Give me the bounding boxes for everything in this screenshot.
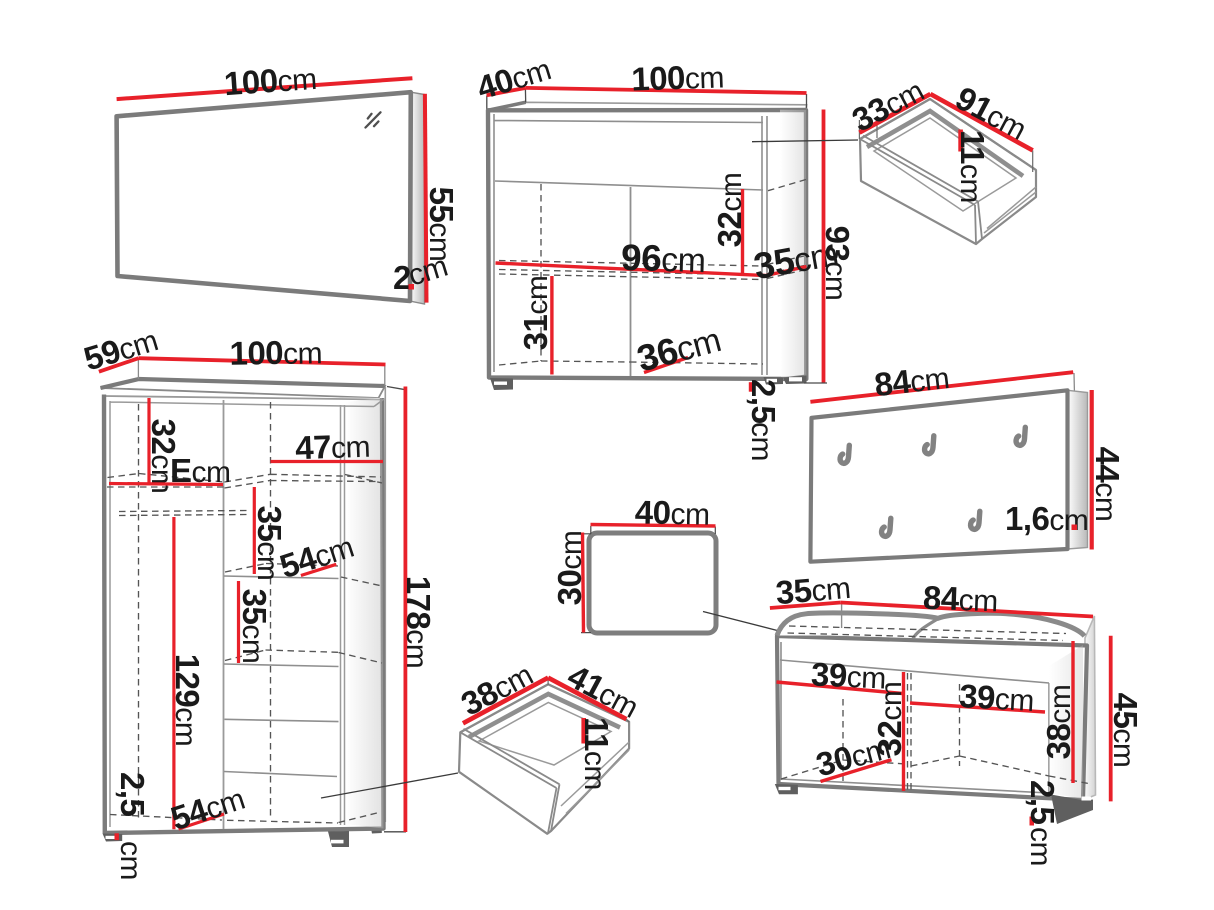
svg-text:100cm: 100cm [631,57,725,97]
svg-text:11cm: 11cm [954,130,991,203]
svg-text:44cm: 44cm [1089,447,1126,522]
svg-text:cm: cm [745,422,778,461]
svg-text:45cm: 45cm [1107,693,1144,768]
svg-text:2,5: 2,5 [1024,780,1061,825]
svg-text:84cm: 84cm [922,579,998,619]
svg-text:cm: cm [1024,827,1057,866]
svg-text:31cm: 31cm [517,276,554,351]
svg-text:40cm: 40cm [473,49,555,106]
svg-text:178cm: 178cm [400,576,437,669]
svg-text:129cm: 129cm [169,654,206,747]
svg-text:32cm: 32cm [711,173,748,248]
svg-text:47cm: 47cm [295,427,371,467]
svg-text:35cm: 35cm [774,568,852,611]
svg-text:35cm: 35cm [236,589,273,664]
svg-text:100cm: 100cm [223,59,318,102]
svg-text:100cm: 100cm [229,333,322,372]
svg-text:11cm: 11cm [578,717,615,790]
svg-text:96cm: 96cm [621,237,707,280]
svg-text:1,6cm: 1,6cm [1005,500,1088,537]
svg-text:2,5: 2,5 [114,772,151,817]
svg-text:59cm: 59cm [80,320,162,377]
svg-text:93cm: 93cm [819,226,856,301]
svg-text:2,5: 2,5 [745,379,782,424]
svg-text:30cm: 30cm [551,531,588,606]
svg-text:84cm: 84cm [872,358,950,403]
svg-text:38cm: 38cm [1040,685,1077,760]
svg-text:cm: cm [114,841,147,880]
svg-text:40cm: 40cm [635,493,710,531]
